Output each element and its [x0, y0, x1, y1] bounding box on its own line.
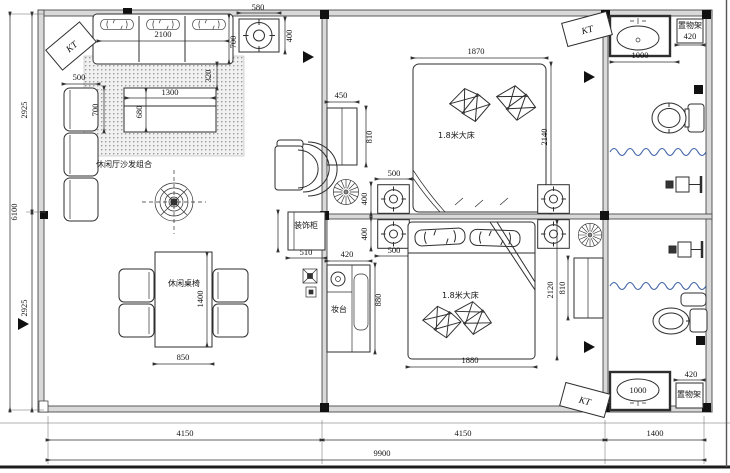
dresser-label: 妆台	[331, 304, 347, 314]
svg-text:500: 500	[388, 168, 401, 178]
dim-spk-upper-width: 500	[377, 168, 410, 179]
dim-radiator1-height: 810	[364, 108, 374, 165]
dresser: 妆台	[327, 265, 370, 352]
shelf-top-label: 置物架	[678, 20, 702, 30]
svg-text:1000: 1000	[632, 50, 649, 60]
dim-spk-upper-height: 400	[359, 184, 371, 214]
svg-text:810: 810	[364, 131, 374, 144]
svg-text:2925: 2925	[19, 102, 29, 119]
dining-set-label: 休闲桌椅	[168, 278, 200, 288]
dim-radiator2-height: 810	[557, 258, 568, 318]
switch-symbol-2	[306, 287, 316, 297]
speaker-box	[378, 220, 410, 249]
speaker-box	[538, 185, 570, 214]
svg-text:700: 700	[90, 104, 100, 117]
triangle-marker	[584, 341, 595, 353]
deco-cabinet: 装饰柜	[278, 212, 325, 250]
toilet-bottom	[653, 293, 707, 334]
svg-text:500: 500	[73, 72, 86, 82]
shelf-top: 置物架 420	[677, 19, 703, 45]
svg-text:2140: 2140	[539, 129, 549, 146]
bath-bottom-fixture-square	[696, 336, 705, 345]
svg-text:810: 810	[557, 282, 567, 295]
radiator-2	[574, 258, 603, 318]
sofa-cushion	[193, 19, 226, 29]
dim-shelf-top-width: 420	[684, 31, 697, 41]
shelf-bottom: 420 置物架	[676, 369, 703, 408]
shelf-bottom-label: 置物架	[677, 389, 701, 399]
shower-curtain-top	[610, 149, 706, 156]
svg-text:2120: 2120	[545, 282, 555, 299]
dim-dining-width: 850	[155, 352, 212, 364]
wall-right	[706, 10, 712, 412]
bed1-label: 1.8米大床	[438, 130, 475, 140]
sink-counter-bottom: 1000	[610, 372, 670, 410]
dim-bottom-seg2: 4150	[322, 428, 605, 440]
dim-left-upper: 2925	[19, 14, 32, 212]
bed-1: 1.8米大床	[413, 64, 546, 212]
sofa	[93, 14, 233, 64]
svg-text:4150: 4150	[455, 428, 472, 438]
radiator-1	[327, 108, 357, 165]
svg-text:1870: 1870	[468, 46, 485, 56]
triangle-marker	[18, 318, 29, 330]
svg-text:420: 420	[341, 249, 354, 259]
floor-plan-drawing: 2100 700 320 500 700 1300 680 休闲厅沙发组合 休闲…	[0, 0, 730, 473]
svg-text:4150: 4150	[177, 428, 194, 438]
dim-spk-lower-height: 400	[359, 219, 371, 249]
speaker-box	[538, 220, 570, 249]
ceiling-speaker-box-top	[239, 19, 279, 52]
svg-text:850: 850	[177, 352, 190, 362]
svg-text:400: 400	[359, 228, 369, 241]
shower-curtain-bottom	[610, 283, 706, 290]
dim-bottom-seg1: 4150	[48, 428, 322, 440]
bath-top-fixture-square	[694, 85, 703, 94]
svg-text:680: 680	[134, 106, 144, 119]
svg-text:510: 510	[300, 247, 313, 257]
switch-symbol-1	[303, 269, 317, 283]
bed2-pillow	[470, 229, 521, 247]
svg-text:880: 880	[373, 294, 383, 307]
ceiling-fan-symbol	[142, 170, 206, 234]
dim-radiator1-width: 450	[327, 90, 357, 102]
floor-plan-sheet: 2100 700 320 500 700 1300 680 休闲厅沙发组合 休闲…	[0, 0, 730, 473]
svg-text:1400: 1400	[195, 291, 205, 308]
svg-text:400: 400	[359, 193, 369, 206]
svg-text:1400: 1400	[647, 428, 664, 438]
svg-text:2100: 2100	[155, 29, 172, 39]
svg-text:450: 450	[335, 90, 348, 100]
dim-dresser-height: 880	[373, 265, 383, 352]
armchair	[275, 140, 337, 196]
dim-left-lower: 2925	[19, 212, 32, 410]
svg-text:6100: 6100	[9, 204, 19, 221]
bed-2: 1.8米大床	[408, 222, 535, 359]
svg-text:320: 320	[203, 70, 213, 83]
svg-text:1300: 1300	[162, 87, 179, 97]
exhaust-fan-symbol-2	[578, 223, 601, 246]
shower-fixture-top	[666, 176, 701, 193]
dim-left-total: 6100	[9, 14, 19, 410]
sofa-cushion	[101, 19, 134, 29]
dim-bottom-seg3: 1400	[605, 428, 704, 440]
triangle-marker	[303, 51, 314, 63]
toilet-top	[652, 103, 704, 133]
svg-text:400: 400	[284, 30, 294, 43]
exhaust-fan-symbol-1	[333, 179, 358, 204]
svg-text:700: 700	[228, 36, 238, 49]
bed2-pillow	[415, 228, 466, 247]
svg-text:9900: 9900	[374, 448, 391, 458]
dim-shelf-bottom-width: 420	[685, 369, 698, 379]
dim-bottom-total: 9900	[48, 448, 704, 460]
dim-ceiling-box-height: 400	[284, 19, 294, 52]
svg-text:2925: 2925	[19, 300, 29, 317]
bed2-label: 1.8米大床	[442, 290, 479, 300]
deco-cabinet-label: 装饰柜	[294, 220, 318, 230]
living-sofa-group-label: 休闲厅沙发组合	[96, 159, 152, 169]
triangle-marker	[584, 71, 595, 83]
svg-text:500: 500	[388, 245, 401, 255]
dim-sink-bottom-width: 1000	[630, 385, 647, 395]
speaker-box	[378, 185, 410, 214]
svg-text:1880: 1880	[462, 355, 479, 365]
dining-set: 休闲桌椅	[119, 252, 248, 347]
dim-bed1-width: 1870	[413, 46, 546, 58]
svg-text:580: 580	[252, 2, 265, 12]
wall-step	[39, 401, 48, 412]
shower-fixture-bottom	[669, 241, 702, 258]
wall-middle	[327, 214, 712, 219]
dim-dresser-width: 420	[327, 249, 370, 261]
